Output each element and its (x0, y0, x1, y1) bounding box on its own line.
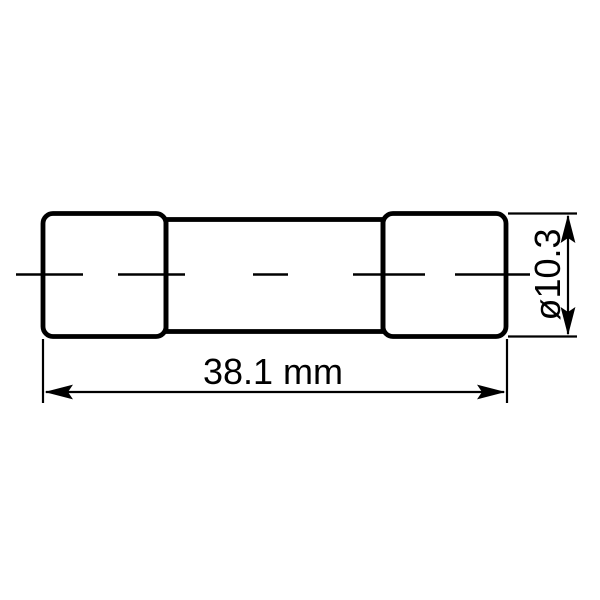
fuse-technical-drawing: 38.1 mm ø10.3 (0, 0, 600, 600)
length-dimension-label: 38.1 mm (203, 351, 343, 392)
drawing-canvas: 38.1 mm ø10.3 (0, 0, 600, 600)
length-dimension: 38.1 mm (43, 339, 507, 403)
diameter-dimension-label: ø10.3 (527, 228, 568, 320)
